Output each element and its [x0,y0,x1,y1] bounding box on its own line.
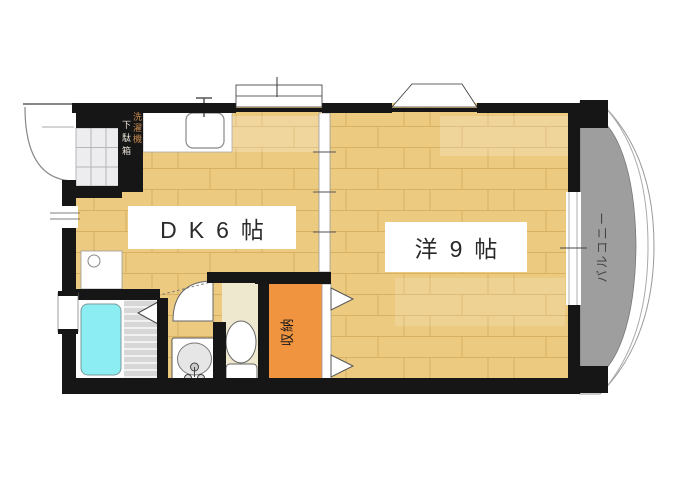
wall-top-mid [322,103,392,113]
toilet-bowl [226,321,256,363]
bathtub [81,304,121,375]
closet-label: 収納 [278,302,294,362]
entrance-inner-wall [74,186,122,198]
balcony-wall-return-bottom [577,366,608,393]
kitchen-sink [186,113,224,148]
floor-plan: DK6帖 洋9帖 収納 バルコニー 洗濯機 下駄箱 [0,0,700,494]
bath-washroom-wall [157,298,168,384]
bathroom-window-cap [58,329,78,334]
kitchen-window-sill [236,108,322,112]
washing-machine-pan [81,251,122,289]
bathroom-window-cap [58,291,78,296]
balcony-label: バルコニー [594,204,609,290]
dk-room-label: DK6帖 [128,206,296,249]
closet-door-track [322,284,331,380]
bathroom-window [58,293,78,332]
shoe-cabinet-label: 下駄箱 [121,120,130,159]
wall-left-2 [62,228,76,292]
bay-window [392,84,477,107]
floor-highlight [395,278,565,326]
washroom-top-wall [74,289,160,300]
closet-top-wall [255,272,331,284]
toilet-closet-wall [258,283,269,384]
floor-highlight [440,116,568,156]
wall-right-1 [568,108,580,192]
balcony-wall-return-top [580,100,608,128]
wall-bottom [62,378,580,394]
wall-left-1 [62,180,76,207]
western-room-label: 洋9帖 [385,222,527,272]
entrance-tile-floor [76,128,121,186]
wall-left-3 [62,332,76,378]
wall-top-left [72,103,236,113]
left-small-window [60,206,78,228]
washroom-toilet-wall [213,322,226,384]
bay-window-sill [392,108,477,112]
entrance-door-opening [58,106,76,182]
washer-strip-label: 洗濯機 [132,112,141,145]
wall-top-right [477,103,580,113]
